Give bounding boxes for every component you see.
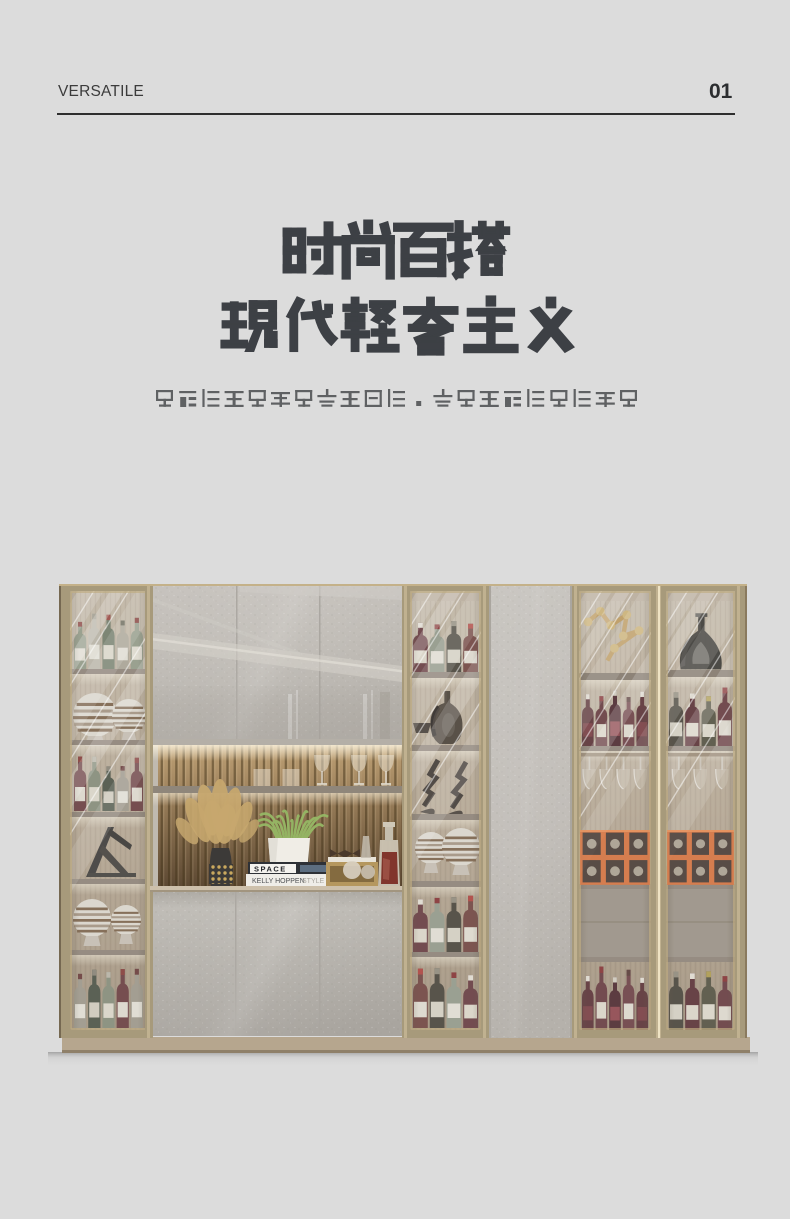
svg-text:STYLE: STYLE [302, 878, 325, 885]
svg-text:KELLY HOPPEN: KELLY HOPPEN [252, 878, 305, 885]
svg-text:SPACE: SPACE [254, 865, 287, 874]
